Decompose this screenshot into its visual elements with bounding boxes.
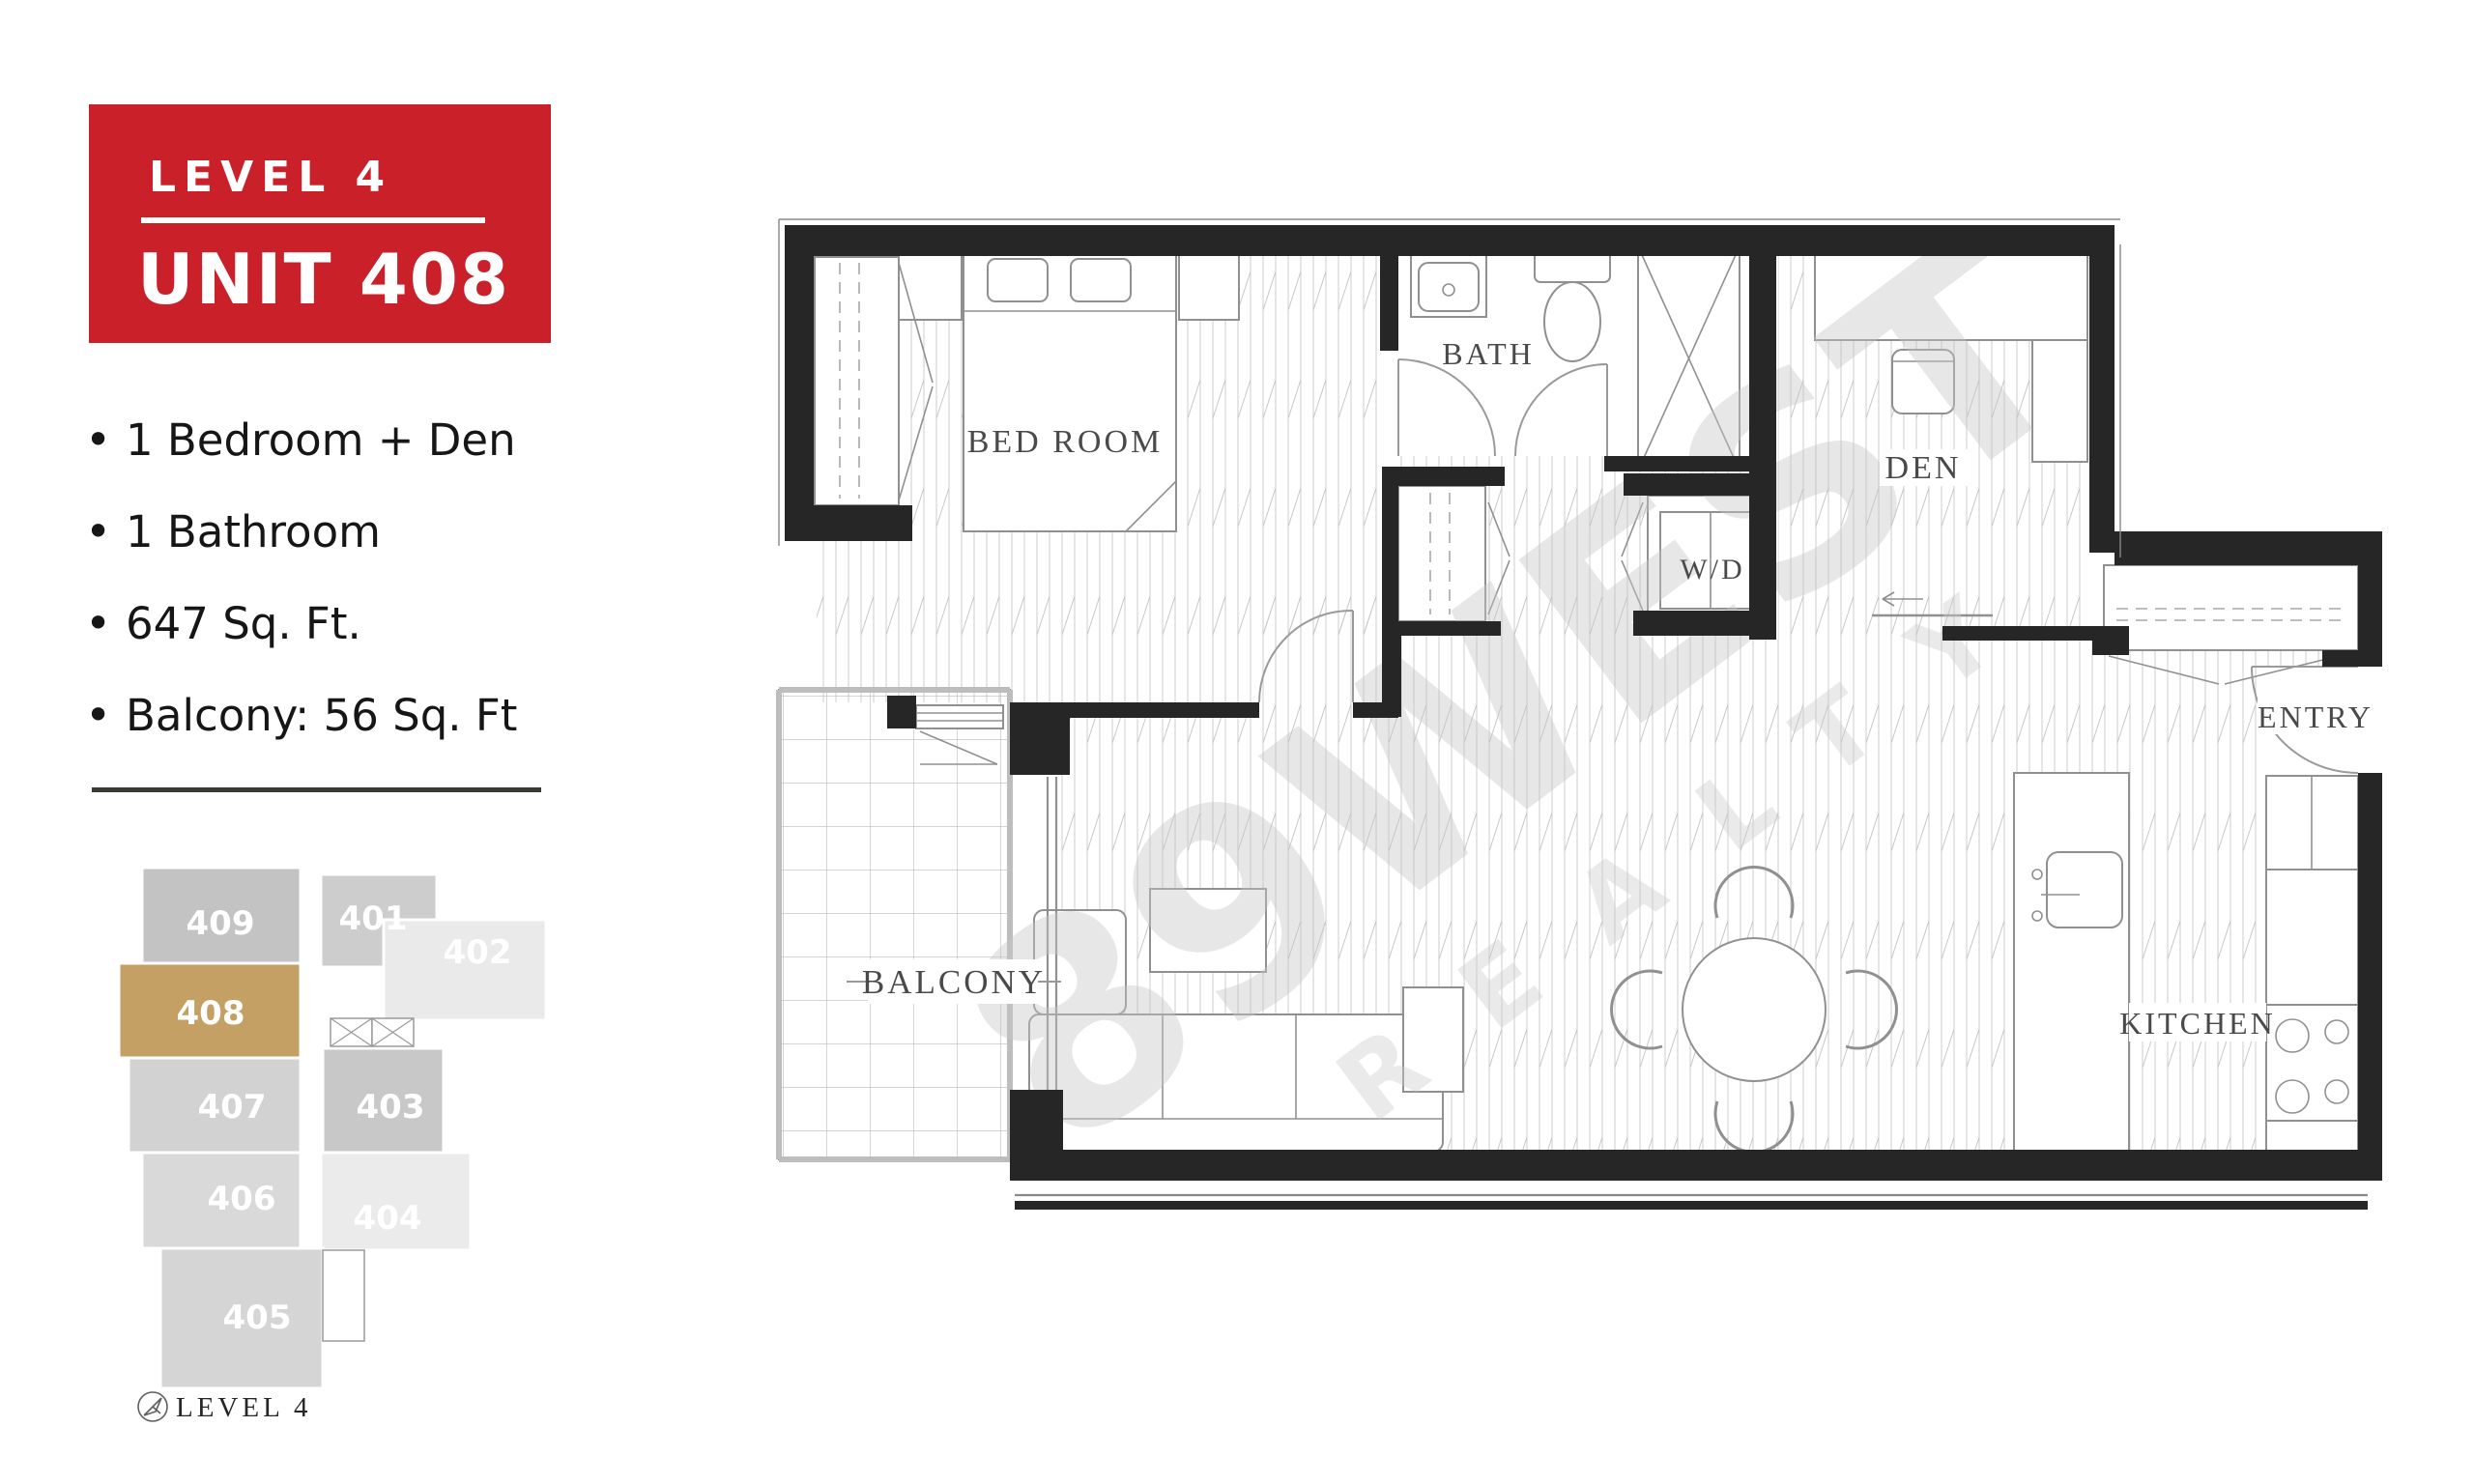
nightstand-right <box>1179 249 1239 320</box>
keyplan-label-402: 402 <box>444 933 512 972</box>
room-label-bath: BATH <box>1442 336 1535 371</box>
kitchen-counter-left <box>2014 773 2129 1177</box>
keyplan-label-408: 408 <box>177 994 245 1033</box>
bedroom-closet <box>815 257 899 505</box>
entry-closet <box>2104 565 2358 650</box>
dining-table <box>1683 938 1826 1081</box>
compass-icon <box>138 1392 167 1421</box>
pillow <box>988 259 1048 301</box>
room-label-bedroom: BED ROOM <box>967 424 1164 460</box>
nightstand-left <box>899 249 962 320</box>
room-label-den: DEN <box>1885 450 1962 486</box>
keyplan-label-404: 404 <box>354 1199 422 1238</box>
keyplan-label-403: 403 <box>357 1088 425 1127</box>
keyplan-label-409: 409 <box>187 904 255 943</box>
floorplan-area: 89WEST REALTY <box>779 179 2382 1305</box>
kitchen-counter-right <box>2266 870 2358 1005</box>
room-label-entry: ENTRY <box>2258 699 2373 734</box>
bath-sink-basin <box>1419 263 1479 311</box>
floorplan-sheet: LEVEL 4 UNIT 408 • 1 Bedroom + Den • 1 B… <box>0 0 2474 1484</box>
room-label-kitchen: KITCHEN <box>2119 1006 2275 1041</box>
room-label-balcony: BALCONY <box>862 963 1046 1001</box>
keyplan: 409 401 402 408 407 403 406 404 405 LEVE… <box>119 868 546 1423</box>
keyplan-caption: LEVEL 4 <box>176 1392 311 1423</box>
pillow <box>1071 259 1131 301</box>
bedroom-window <box>916 705 1003 728</box>
keyplan-label-401: 401 <box>339 899 408 938</box>
kitchen-sink <box>2047 852 2122 927</box>
toilet-bowl <box>1544 282 1600 361</box>
room-label-washer-dryer: W/D <box>1680 554 1744 585</box>
floorplan-drawing: 409 401 402 408 407 403 406 404 405 LEVE… <box>0 0 2474 1484</box>
keyplan-label-407: 407 <box>198 1088 267 1127</box>
keyplan-label-405: 405 <box>223 1298 292 1337</box>
keyplan-label-406: 406 <box>208 1180 276 1218</box>
